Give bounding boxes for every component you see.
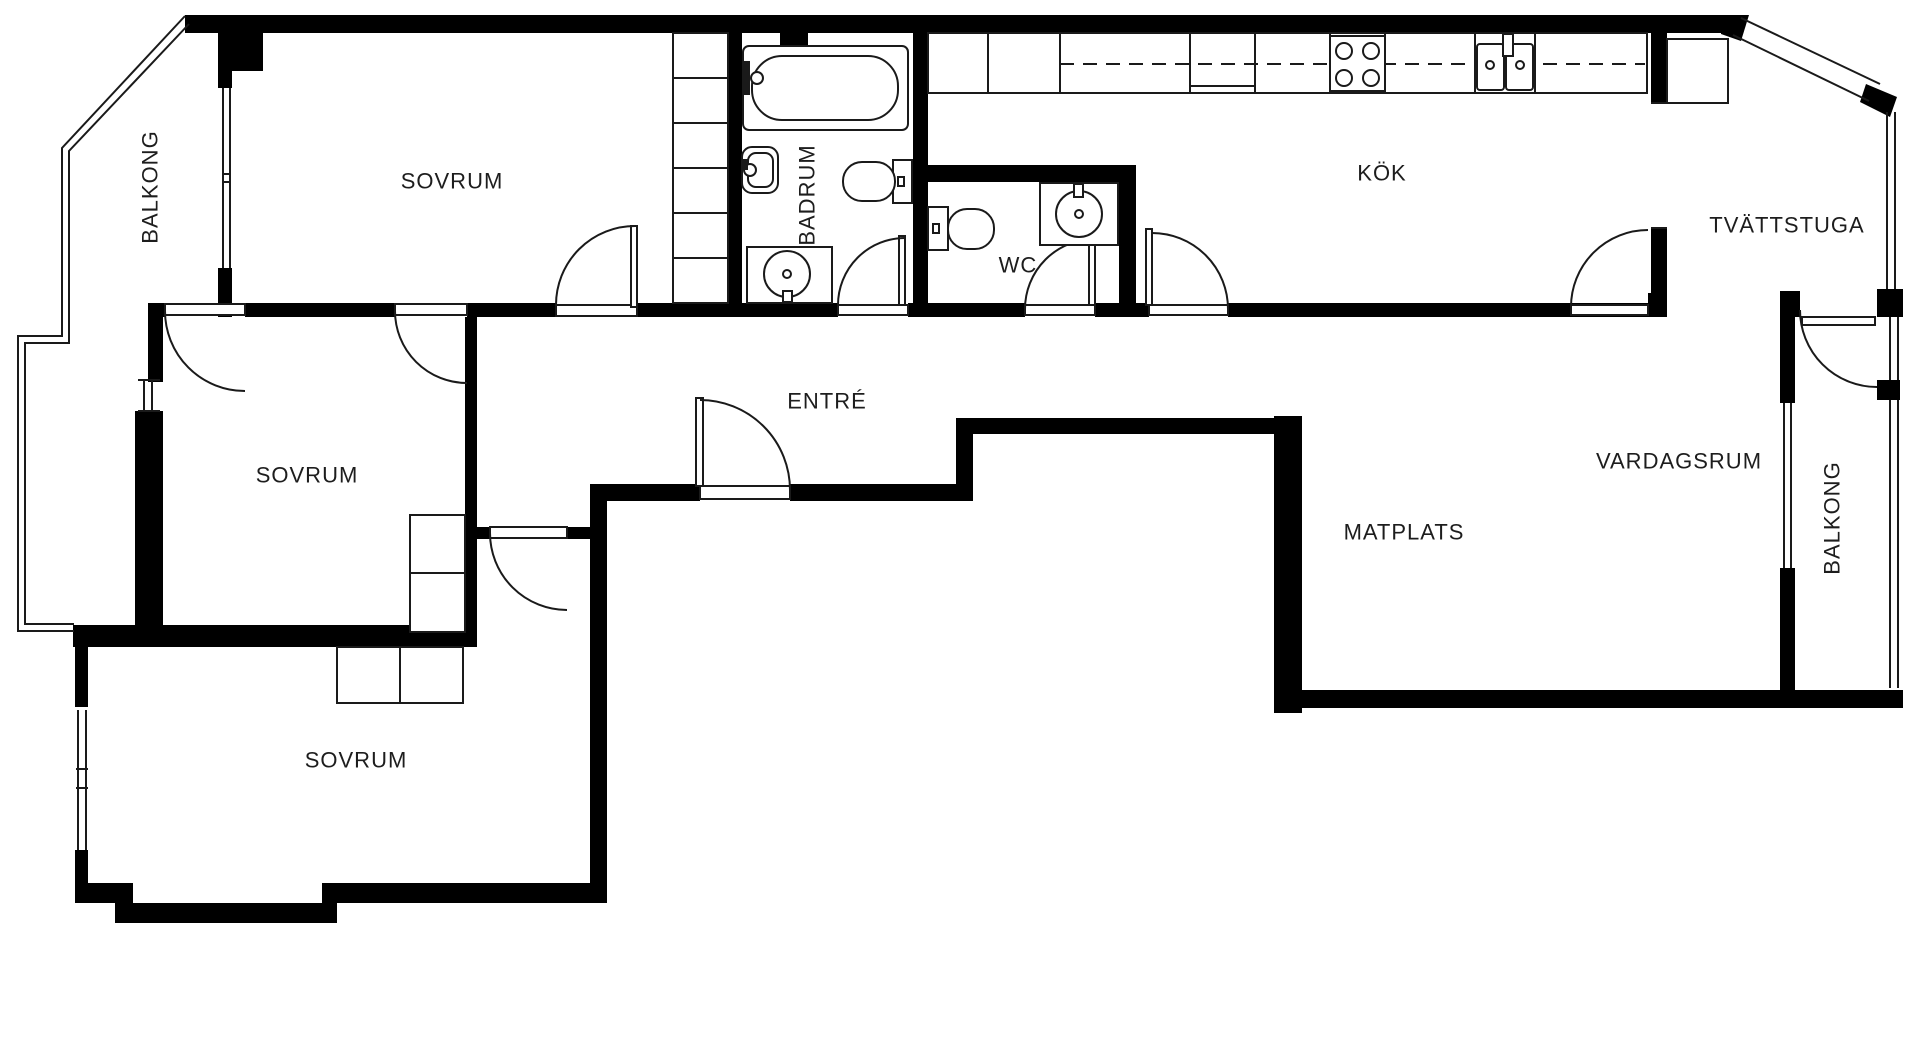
closet-squares (337, 515, 465, 703)
wc-toilet (928, 207, 994, 250)
room-label-balkong-right: BALKONG (1820, 461, 1845, 574)
room-label-entre: ENTRÉ (787, 389, 867, 414)
room-label-sovrum-top: SOVRUM (401, 169, 504, 194)
bathroom-toilet (843, 160, 912, 203)
room-label-vardagsrum: VARDAGSRUM (1596, 449, 1762, 474)
room-label-balkong-left: BALKONG (138, 130, 163, 243)
room-label-wc: WC (999, 253, 1038, 278)
room-label-matplats: MATPLATS (1344, 520, 1465, 545)
room-label-tvattstuga: TVÄTTSTUGA (1709, 213, 1864, 238)
bathtub (743, 46, 908, 130)
room-label-kok: KÖK (1357, 161, 1406, 186)
laundry-cabinet (1667, 39, 1728, 103)
balcony-railing-left (18, 16, 189, 631)
bathroom-vanity-sink (747, 247, 832, 303)
kitchen-counter (928, 33, 1647, 93)
floor-plan-canvas: SOVRUM BALKONG BADRUM WC KÖK TVÄTTSTUGA … (0, 0, 1917, 1050)
bathroom-wall-sink (742, 147, 778, 193)
floor-plan: SOVRUM BALKONG BADRUM WC KÖK TVÄTTSTUGA … (0, 0, 1917, 1050)
room-label-sovrum-middle: SOVRUM (256, 463, 359, 488)
wardrobe-shelves (673, 33, 728, 303)
stove-4-burners (1330, 36, 1385, 91)
room-label-sovrum-bottom: SOVRUM (305, 748, 408, 773)
balcony-railing-right (1890, 317, 1898, 688)
wc-sink (1040, 183, 1118, 245)
room-label-badrum: BADRUM (795, 144, 820, 245)
